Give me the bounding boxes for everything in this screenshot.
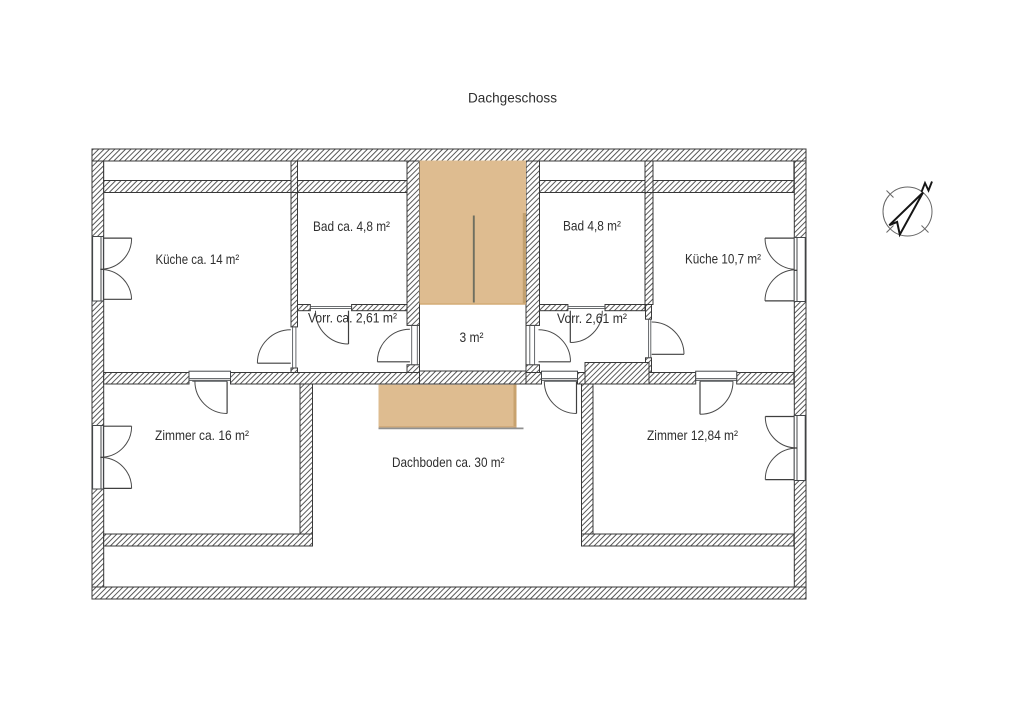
- svg-text:Küche ca. 14 m²: Küche ca. 14 m²: [156, 251, 240, 267]
- svg-text:Zimmer ca. 16 m²: Zimmer ca. 16 m²: [155, 427, 249, 443]
- svg-text:Dachboden ca. 30 m²: Dachboden ca. 30 m²: [392, 454, 505, 470]
- svg-text:Bad 4,8 m²: Bad 4,8 m²: [563, 217, 621, 233]
- svg-text:3 m²: 3 m²: [460, 329, 484, 345]
- svg-text:Küche 10,7 m²: Küche 10,7 m²: [685, 250, 761, 266]
- svg-text:Zimmer 12,84 m²: Zimmer 12,84 m²: [647, 427, 738, 443]
- svg-text:Bad ca. 4,8 m²: Bad ca. 4,8 m²: [313, 218, 390, 234]
- svg-text:Vorr. ca. 2,61 m²: Vorr. ca. 2,61 m²: [308, 310, 397, 326]
- svg-text:Vorr. 2,61 m²: Vorr. 2,61 m²: [557, 310, 627, 326]
- svg-text:Dachgeschoss: Dachgeschoss: [468, 90, 557, 106]
